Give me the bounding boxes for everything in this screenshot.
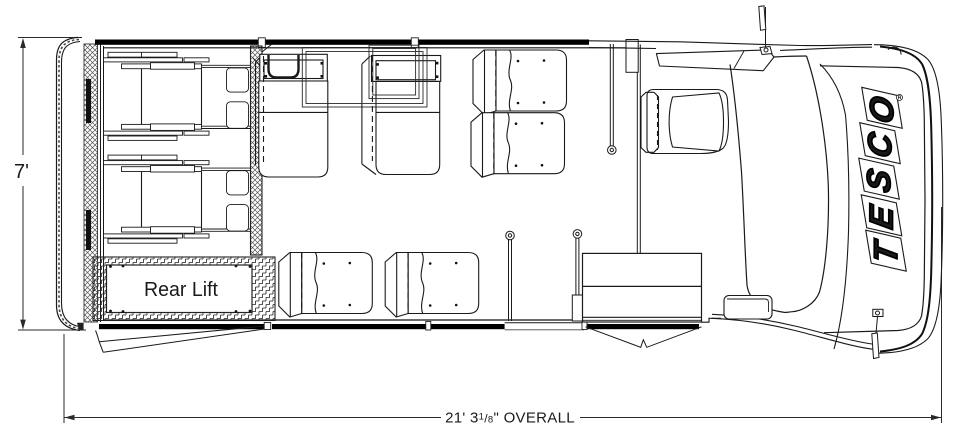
svg-text:Rear Lift: Rear Lift <box>144 279 218 301</box>
svg-text:21' 31/8" OVERALL: 21' 31/8" OVERALL <box>445 410 575 427</box>
svg-text:7': 7' <box>14 161 29 183</box>
